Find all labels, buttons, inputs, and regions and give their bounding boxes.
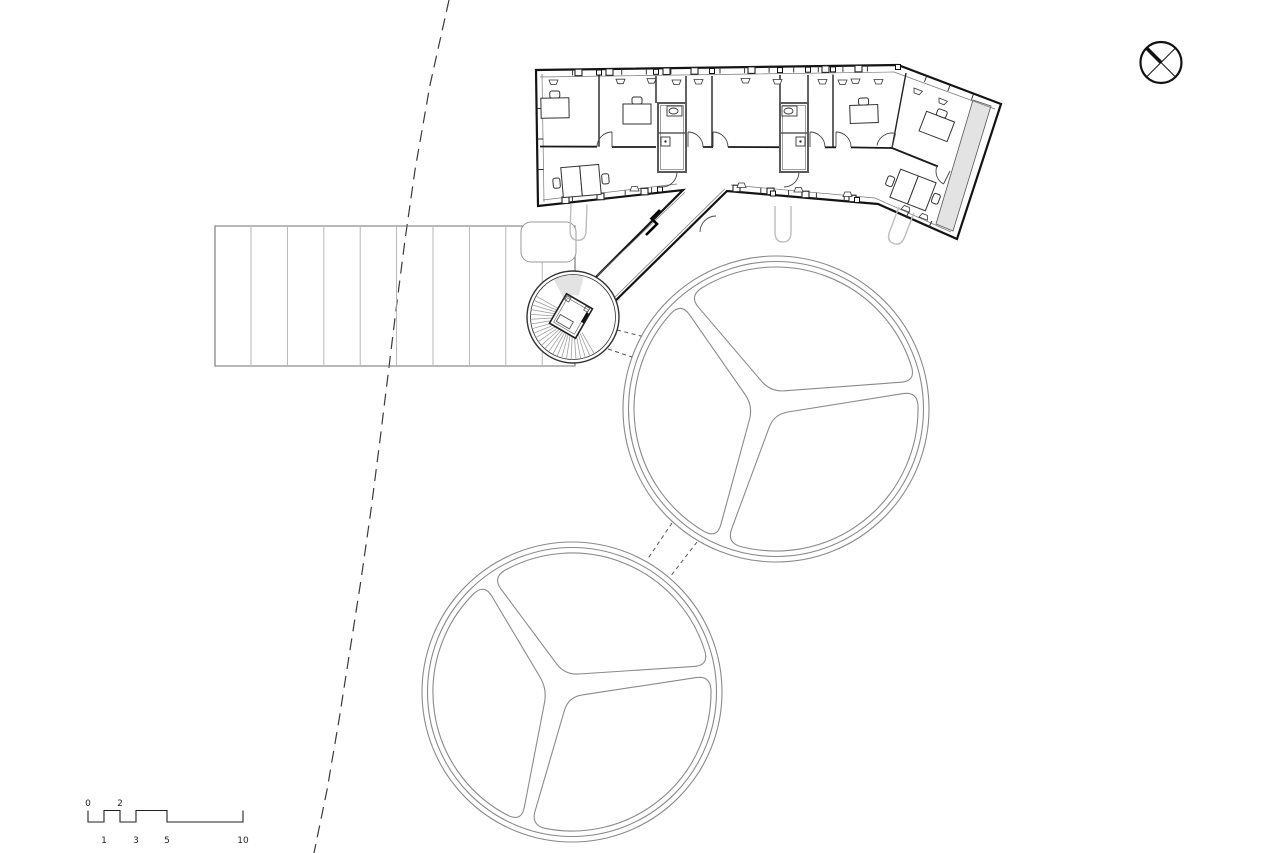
wc1-sink-basin: [669, 108, 678, 114]
window-frame: [822, 66, 829, 73]
canopy-segment: [694, 267, 912, 391]
structural-column: [597, 70, 602, 75]
scale-label-3: 3: [133, 836, 139, 846]
chair: [550, 91, 560, 98]
scale-label-5: 5: [164, 836, 170, 846]
desk-top: [850, 105, 879, 124]
canopy-circles: [422, 256, 929, 842]
canopy-segment: [498, 553, 706, 674]
column-u-2: [775, 206, 791, 242]
entry-landing: [521, 222, 576, 262]
scale-label-0: 0: [85, 799, 91, 809]
window-frame: [641, 188, 648, 195]
vent-window: [672, 80, 681, 85]
scale-label-2: 2: [117, 799, 123, 809]
structural-column: [654, 69, 659, 74]
site-boundary-dashed-line: [314, 0, 449, 853]
chair: [632, 97, 642, 104]
vent-window: [818, 80, 827, 85]
desk-top: [561, 166, 583, 198]
window-frame: [691, 68, 698, 75]
canopy-segment: [634, 308, 751, 533]
stair-tower: [527, 271, 619, 363]
vent-window: [630, 187, 639, 192]
structural-column: [831, 67, 836, 72]
floor-plan-canvas: 0 2 1 3 5 10: [0, 0, 1280, 853]
desk-top: [623, 104, 651, 124]
wc2-sink-basin: [784, 108, 793, 114]
wc1-toilet-dot: [664, 140, 666, 142]
scale-bar: 0 2 1 3 5 10: [85, 799, 249, 846]
link-canopy-canopy-a: [647, 523, 672, 560]
chair: [553, 178, 561, 189]
window-frame: [855, 65, 862, 72]
north-thin-radius: [1161, 63, 1176, 78]
link-tower-canopy-b: [608, 349, 632, 357]
vent-window: [741, 79, 750, 84]
canopy-outer-ring: [422, 542, 722, 842]
structural-column: [778, 68, 783, 73]
desk-top: [541, 98, 569, 118]
vent-window: [773, 80, 782, 85]
canopy-inner-ring: [428, 548, 717, 837]
canopy-inner-ring: [629, 262, 924, 557]
canopy-segment: [534, 677, 711, 831]
facade-columns: [570, 204, 914, 246]
vent-window: [616, 79, 625, 84]
scale-label-10: 10: [237, 836, 249, 846]
structural-column: [855, 198, 860, 203]
structural-column: [710, 69, 715, 74]
wc2-toilet-dot: [799, 140, 801, 142]
north-bold-radius: [1147, 48, 1162, 63]
scale-bar-shape: [88, 811, 243, 823]
desk-top: [580, 164, 602, 196]
chair: [858, 98, 868, 105]
window-frame: [575, 69, 582, 76]
vent-window: [549, 80, 558, 85]
link-tower-canopy-a: [617, 330, 641, 336]
structural-column: [658, 187, 663, 192]
vent-window: [737, 183, 746, 188]
vent-window: [843, 192, 852, 197]
vent-window: [851, 79, 860, 84]
vent-window: [874, 80, 883, 85]
vent-window: [694, 80, 703, 85]
window-frame: [663, 68, 670, 75]
dashed-walkway-links: [608, 330, 697, 577]
office-building: [536, 65, 1001, 310]
north-arrow: [1141, 42, 1182, 83]
link-canopy-canopy-b: [670, 542, 697, 577]
canopy-segment: [433, 589, 545, 817]
canopy-segment: [730, 393, 918, 551]
window-frame: [748, 67, 755, 74]
structural-column: [771, 191, 776, 196]
plan-drawing: 0 2 1 3 5 10: [0, 0, 1280, 853]
structural-column: [896, 65, 901, 70]
vent-window: [838, 80, 847, 85]
canopy-outer-ring: [623, 256, 929, 562]
vent-window: [794, 188, 803, 193]
vent-window: [647, 79, 656, 84]
scale-label-1: 1: [101, 836, 107, 846]
wc-pod-1: [658, 103, 686, 172]
wc-pod-2: [780, 103, 808, 172]
chair: [601, 174, 609, 185]
window-frame: [606, 69, 613, 76]
structural-column: [806, 67, 811, 72]
door-corridor-side: [700, 216, 716, 232]
